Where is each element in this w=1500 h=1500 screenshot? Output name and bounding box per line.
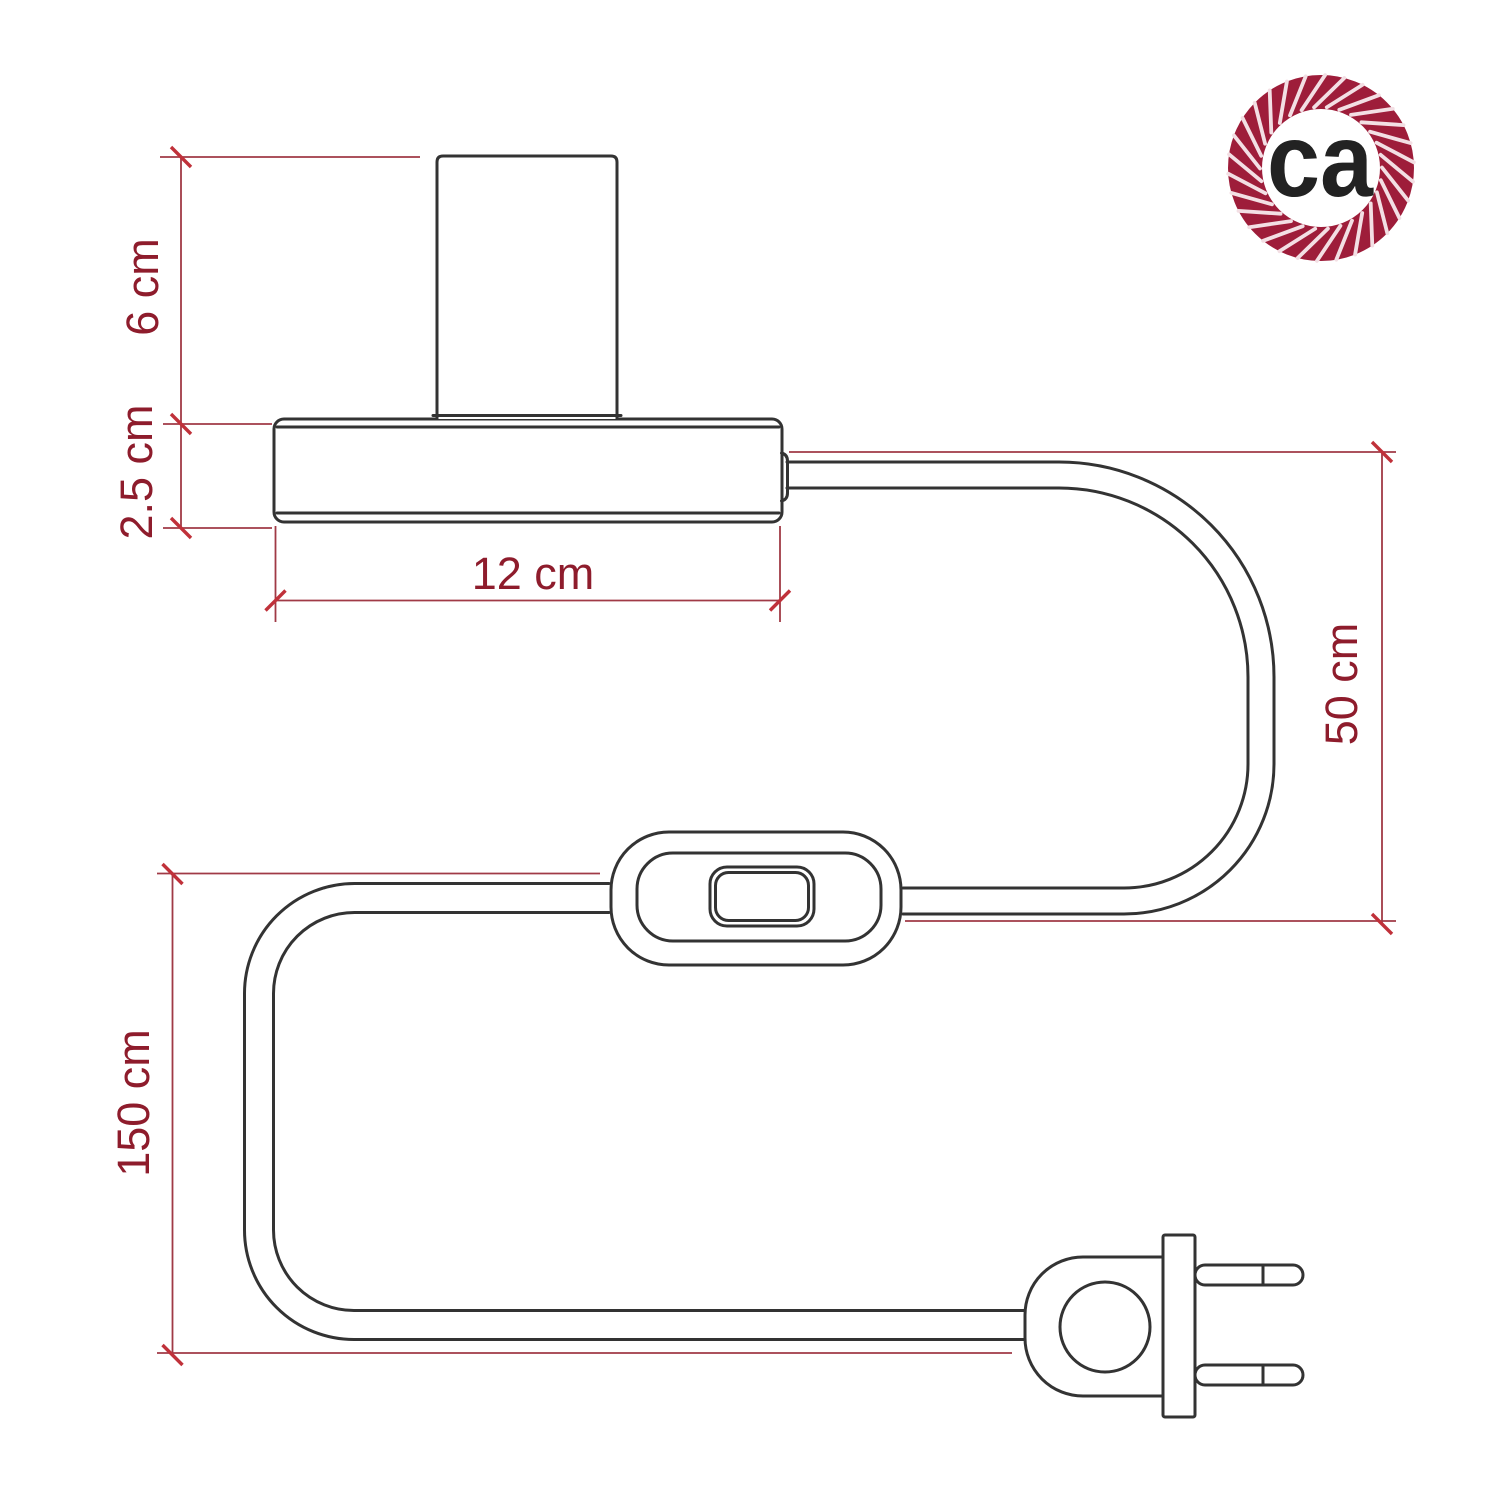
- svg-text:50 cm: 50 cm: [1316, 623, 1367, 746]
- svg-text:6 cm: 6 cm: [117, 238, 168, 336]
- svg-text:150 cm: 150 cm: [108, 1029, 159, 1177]
- svg-text:12 cm: 12 cm: [472, 548, 595, 599]
- svg-text:2.5 cm: 2.5 cm: [111, 404, 162, 539]
- svg-text:ca: ca: [1267, 103, 1374, 219]
